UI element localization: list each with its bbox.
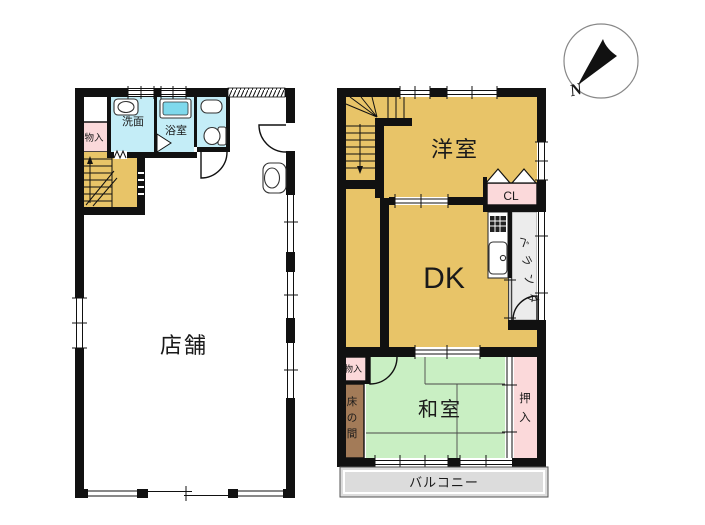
dk-label: DK (423, 262, 465, 295)
corridor-toilet-bowl-icon (265, 168, 280, 188)
bathroom-label: 浴室 (165, 123, 187, 137)
window-right-2 (284, 272, 298, 318)
storage-2f-label: 物入 (344, 363, 362, 374)
accordion-door (114, 151, 127, 159)
floor1-plan: 物入 洗面 浴室 店舗 (72, 86, 298, 501)
japanese-room-label: 和室 (418, 398, 462, 421)
toilet-bowl-icon (204, 128, 220, 145)
washroom-label: 洗面 (122, 115, 144, 128)
opening-dk-japanese (415, 345, 480, 359)
room-oshiire (514, 357, 537, 458)
floor-plan-page: 物入 洗面 浴室 店舗 (0, 0, 705, 525)
balcony-label: バルコニー (409, 475, 479, 490)
toilet-tank-icon (201, 100, 222, 113)
washbasin-bowl-icon (118, 102, 134, 113)
shutter-hatch (228, 88, 285, 97)
kitchen-counter (488, 212, 508, 278)
stove-icon (490, 216, 506, 232)
window-bottom-2 (238, 489, 283, 498)
window-right-3 (284, 343, 298, 398)
svg-text:入: 入 (519, 411, 531, 424)
svg-text:の: の (347, 412, 358, 424)
western-room-label: 洋室 (431, 137, 479, 162)
closet-label: CL (503, 189, 519, 203)
svg-text:床: 床 (347, 395, 358, 408)
compass: N (564, 24, 638, 100)
window-right-1 (284, 195, 298, 252)
shop-label: 店舗 (160, 333, 208, 358)
svg-text:間: 間 (347, 428, 358, 440)
floor2-plan: バルコニー 洋室 CL DK 物入 和室 床 の 間 押 入 ベ ラ ン ダ (337, 86, 548, 497)
bathtub-water-icon (163, 102, 188, 115)
floor-plan-drawing: 物入 洗面 浴室 店舗 (0, 0, 705, 525)
balcony: バルコニー (340, 467, 548, 497)
svg-text:押: 押 (519, 391, 531, 405)
tokonoma-label: 床 の 間 (347, 395, 358, 440)
window-bottom-1 (88, 489, 137, 498)
storage-1f-label: 物入 (84, 132, 104, 144)
faucet-icon (500, 255, 505, 260)
